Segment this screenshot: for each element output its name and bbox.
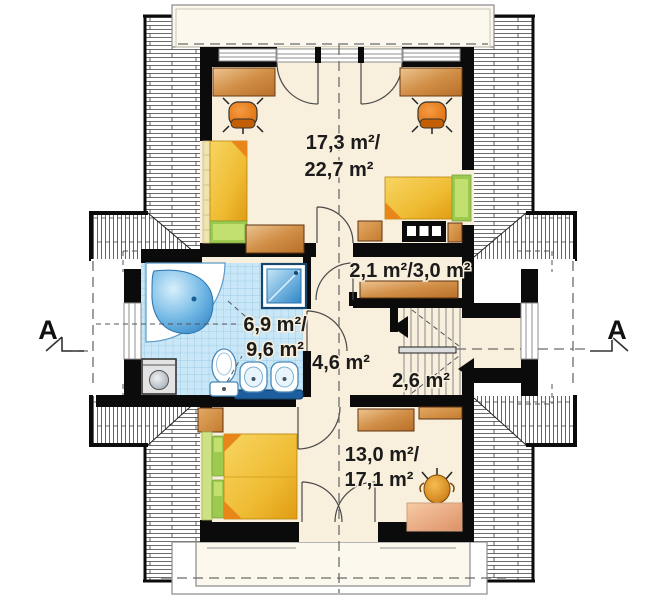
section-mark-right: A [590, 315, 628, 351]
window-top-left [219, 49, 276, 61]
room-label-wardrobe: 2,1 m²/3,0 m² [349, 260, 471, 282]
roof-overhang-top [172, 5, 494, 47]
shelf-unit [402, 221, 446, 242]
floor-plan: 17,3 m²/ 22,7 m² 2,1 m²/3,0 m² 6,9 m²/ 9… [0, 0, 666, 600]
room-label-bathroom-2: 9,6 m² [246, 339, 304, 361]
shower [262, 264, 306, 308]
desk-right [400, 68, 462, 96]
washing-machine [142, 359, 176, 394]
dresser-bottom-1 [358, 409, 414, 431]
wardrobe-shelf [360, 281, 458, 298]
room-label-bedroom-bottom-2: 17,1 m² [345, 469, 414, 491]
floor-plan-page: 17,3 m²/ 22,7 m² 2,1 m²/3,0 m² 6,9 m²/ 9… [0, 0, 666, 600]
room-label-bedroom-top-2: 22,7 m² [305, 159, 374, 181]
section-label-right: A [607, 315, 627, 345]
bed-double [202, 432, 297, 520]
nightstand-3 [198, 408, 223, 432]
terrace-bottom [172, 542, 487, 594]
dresser-top-room [246, 225, 304, 253]
window-top-right [403, 49, 460, 61]
room-label-hall: 4,6 m² [312, 352, 370, 374]
rug [407, 503, 462, 531]
bed-single-right [385, 175, 471, 221]
section-label-left: A [38, 315, 58, 345]
section-mark-left: A [38, 315, 84, 351]
room-label-staircase: 2,6 m² [392, 370, 450, 392]
room-label-bedroom-top-1: 17,3 m²/ [306, 132, 381, 154]
nightstand-2 [448, 223, 462, 242]
room-label-bathroom-1: 6,9 m²/ [243, 314, 307, 336]
washbasin-1 [240, 362, 267, 392]
desk-left [213, 68, 275, 96]
window-stair-bay [521, 303, 538, 359]
toilet [210, 349, 238, 396]
washbasin-2 [271, 362, 298, 392]
dresser-bottom-2 [419, 407, 462, 419]
nightstand-1 [358, 221, 382, 241]
stair-handrail [399, 347, 456, 353]
room-label-bedroom-bottom-1: 13,0 m²/ [345, 444, 420, 466]
window-bathroom [124, 303, 141, 359]
bed-single-left [203, 141, 247, 243]
